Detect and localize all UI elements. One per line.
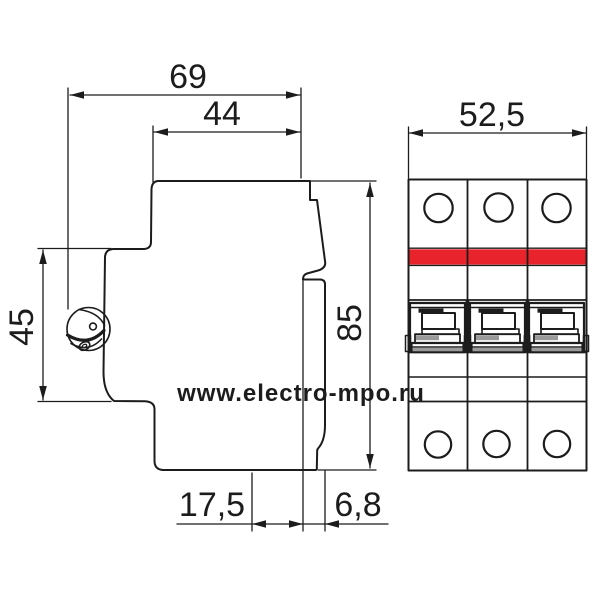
extension-lines-69 xyxy=(68,88,301,309)
arrowhead-right xyxy=(286,128,300,136)
toggle-pole-2 xyxy=(466,303,530,352)
dim-label-45: 45 xyxy=(3,308,41,346)
arrowhead-left xyxy=(252,520,266,528)
dim-label-17-5: 17,5 xyxy=(179,486,245,524)
arrowhead-up xyxy=(39,250,47,264)
red-accent-band xyxy=(409,249,587,264)
arrowhead-right xyxy=(572,129,586,137)
arrowhead-right xyxy=(289,520,303,528)
profile-top-front xyxy=(158,181,325,280)
arrowhead-left xyxy=(409,129,423,137)
dimension-front-depth: 44 xyxy=(153,95,300,182)
dim-label-69: 69 xyxy=(169,58,207,96)
dim-label-44: 44 xyxy=(203,95,241,133)
screw-top-1 xyxy=(424,194,452,222)
dimension-total-depth: 69 xyxy=(68,58,301,309)
extension-lines-52-5 xyxy=(409,127,587,178)
profile-back-bottom xyxy=(104,181,317,470)
profile-toggle-lever xyxy=(303,280,325,470)
toggle-pole-3 xyxy=(525,303,589,352)
arrowhead-right xyxy=(286,91,300,99)
front-view: 52,5 xyxy=(406,96,589,471)
dim-label-85: 85 xyxy=(331,304,369,342)
screw-bottom-2 xyxy=(483,431,509,457)
dim-label-6-8: 6,8 xyxy=(334,486,381,524)
breaker-dimensional-drawing: www.electro-mpo.ru 69 xyxy=(0,0,600,600)
screw-top-2 xyxy=(484,193,512,221)
arrowhead-left xyxy=(70,91,84,99)
dim-label-52-5: 52,5 xyxy=(459,96,525,134)
arrowhead-down xyxy=(39,386,47,400)
toggle-pole-1 xyxy=(406,303,470,352)
watermark-text: www.electro-mpo.ru xyxy=(176,380,425,407)
screw-bottom-1 xyxy=(425,431,451,457)
dimension-overall-width: 52,5 xyxy=(409,96,587,178)
arrowhead-down xyxy=(366,454,374,468)
arrowhead-up xyxy=(366,183,374,197)
screw-top-3 xyxy=(542,194,570,222)
screw-bottom-3 xyxy=(544,431,570,457)
side-view: 69 44 45 85 xyxy=(3,58,388,531)
dimensional-drawing-canvas: www.electro-mpo.ru 69 xyxy=(0,0,600,600)
side-profile xyxy=(104,181,326,470)
arrowhead-left xyxy=(154,128,168,136)
